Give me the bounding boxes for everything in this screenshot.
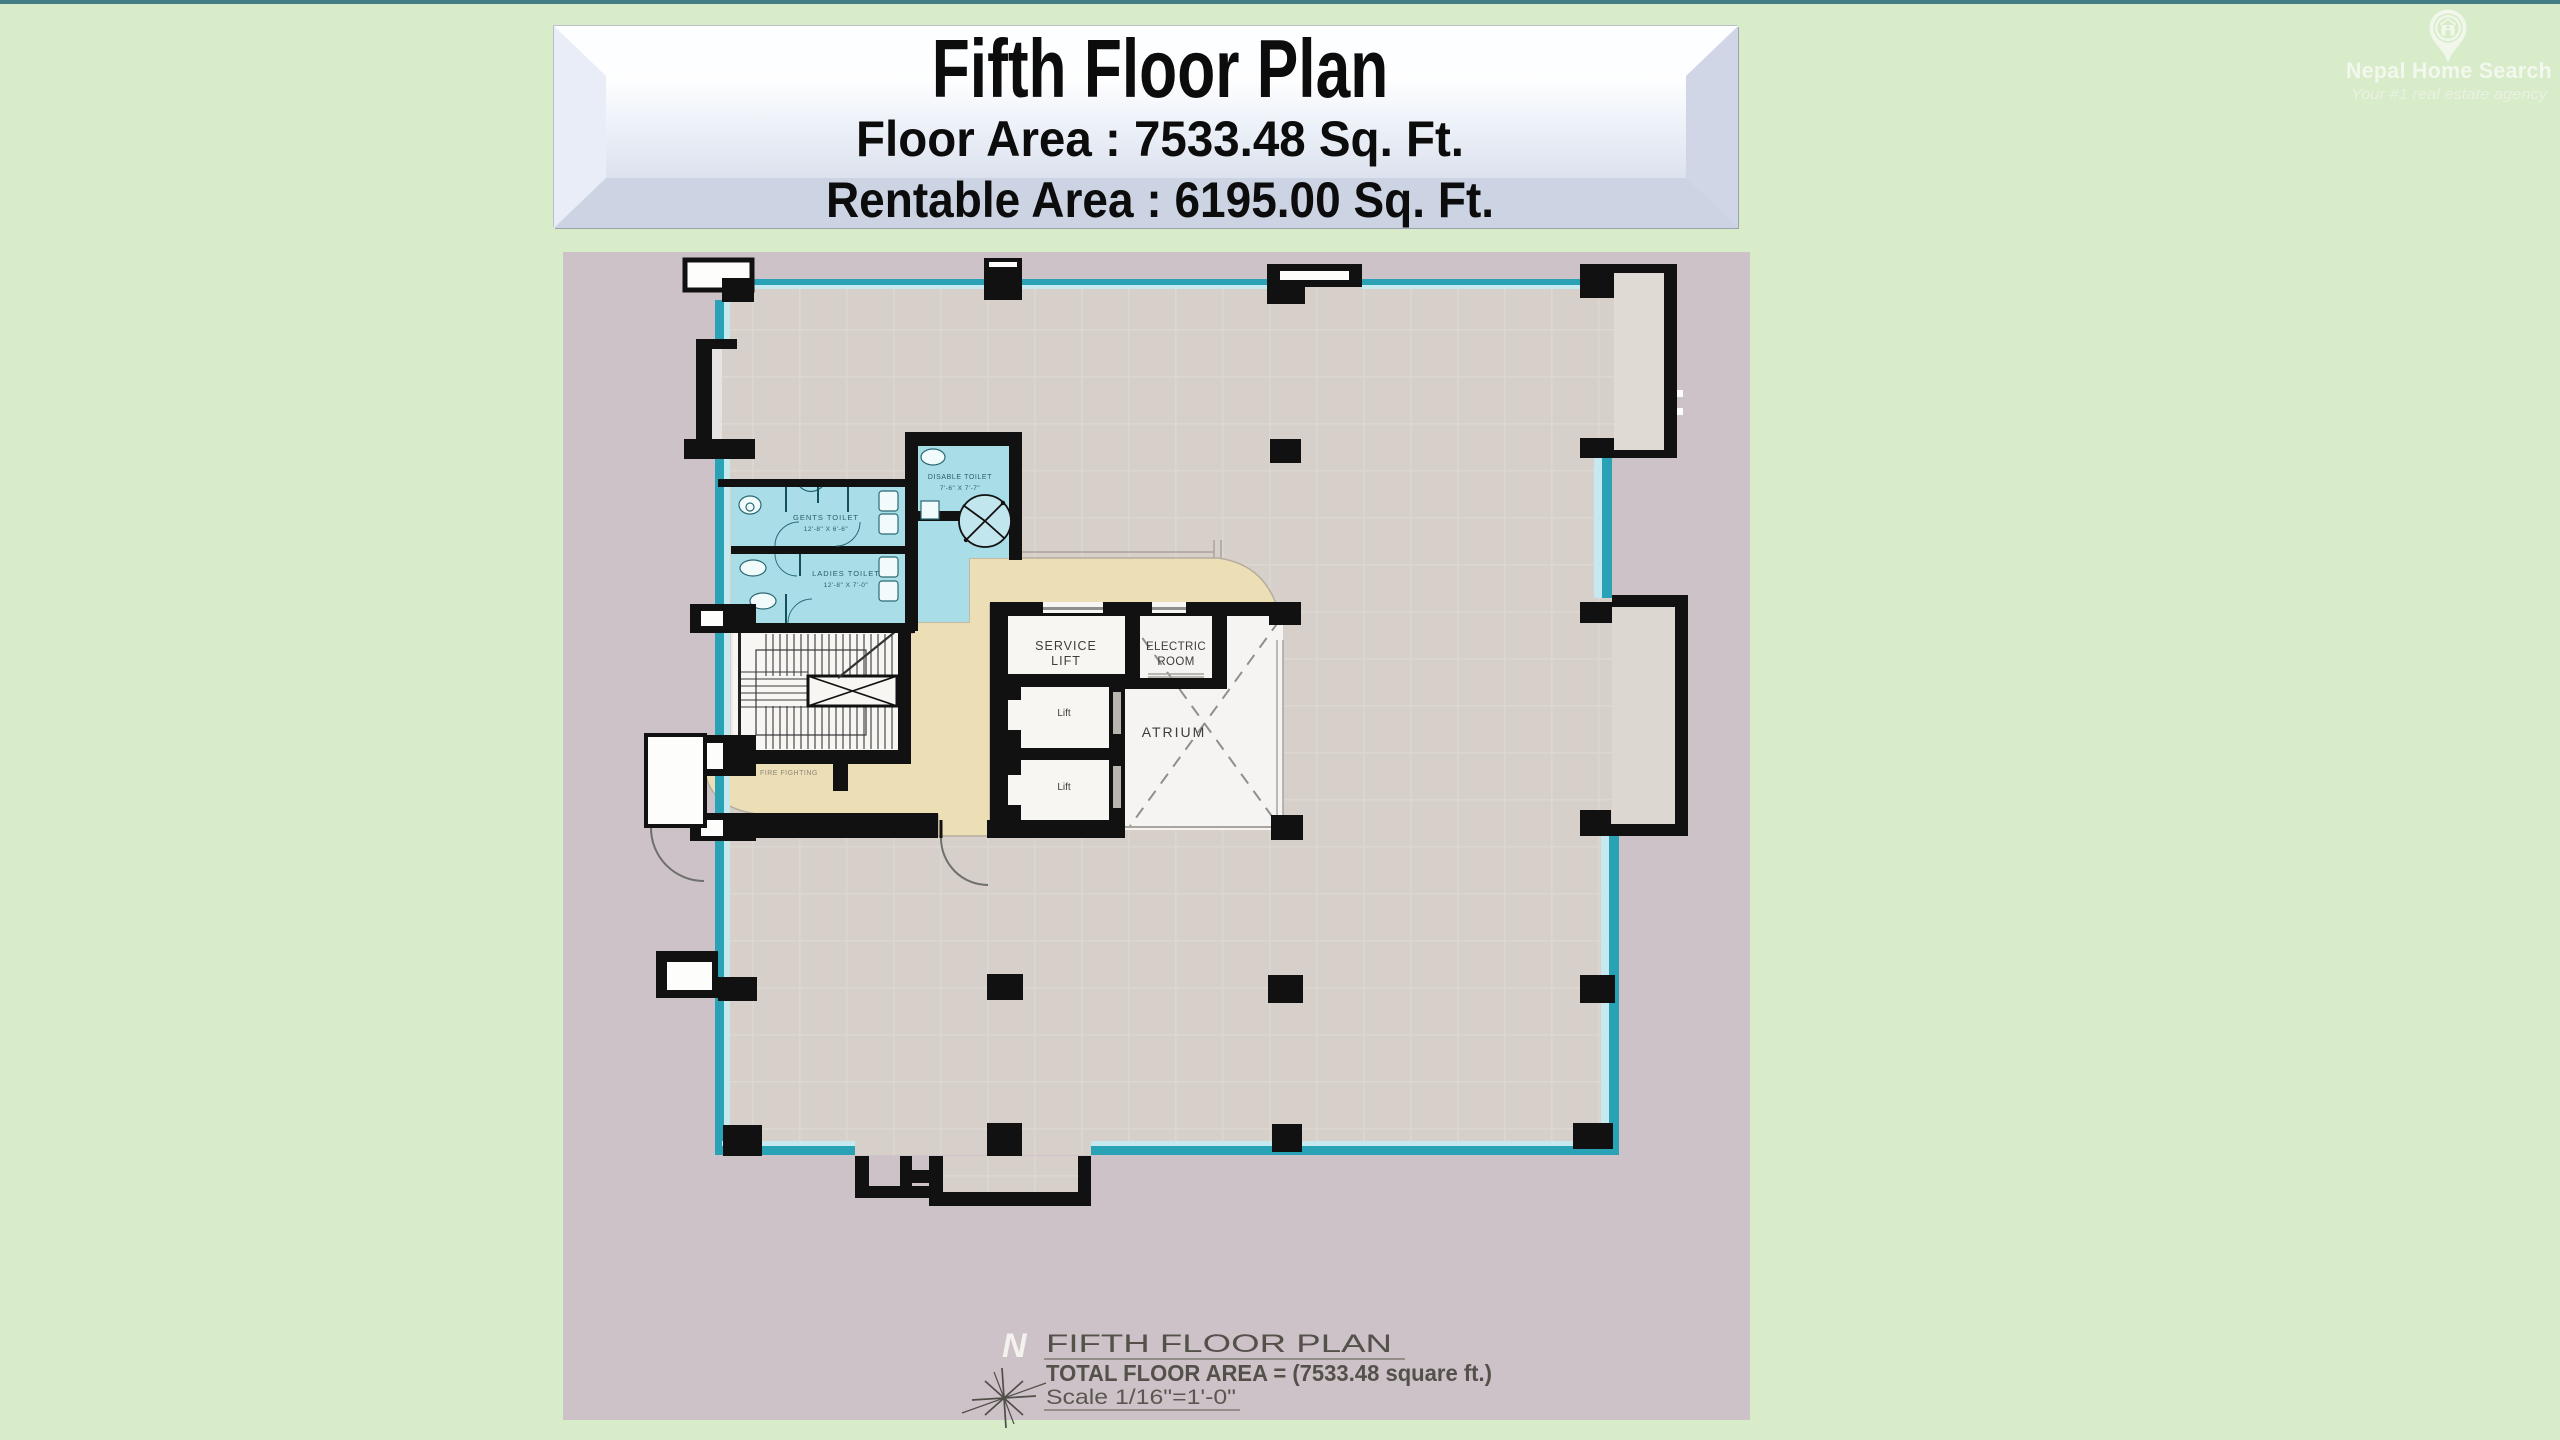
svg-text:SERVICE: SERVICE (1035, 639, 1097, 653)
svg-text:12'-8" X 7'-0": 12'-8" X 7'-0" (824, 582, 869, 589)
svg-text:LADIES TOILET: LADIES TOILET (812, 569, 880, 578)
svg-text:ATRIUM: ATRIUM (1142, 724, 1207, 740)
svg-text:7'-6" X 7'-7": 7'-6" X 7'-7" (940, 485, 981, 492)
svg-text:FIRE FIGHTING: FIRE FIGHTING (760, 770, 818, 777)
svg-text:ROOM: ROOM (1157, 656, 1194, 668)
svg-text:ELECTRIC: ELECTRIC (1146, 641, 1206, 653)
svg-text:LIFT: LIFT (1051, 654, 1081, 668)
svg-text:N: N (1002, 1327, 1028, 1365)
svg-text:12'-8" X 6'-6": 12'-8" X 6'-6" (804, 526, 849, 533)
svg-text:GENTS TOILET: GENTS TOILET (793, 513, 859, 522)
svg-text:FIFTH FLOOR PLAN: FIFTH FLOOR PLAN (1046, 1330, 1392, 1358)
svg-text:Lift: Lift (1057, 782, 1071, 793)
svg-text:Lift: Lift (1057, 708, 1071, 719)
svg-text:DISABLE TOILET: DISABLE TOILET (928, 474, 992, 481)
svg-text:Scale 1/16"=1'-0": Scale 1/16"=1'-0" (1046, 1386, 1236, 1409)
svg-text:TOTAL FLOOR AREA = (7533.48: TOTAL FLOOR AREA = (7533.48 square ft.) (1046, 1360, 1492, 1386)
